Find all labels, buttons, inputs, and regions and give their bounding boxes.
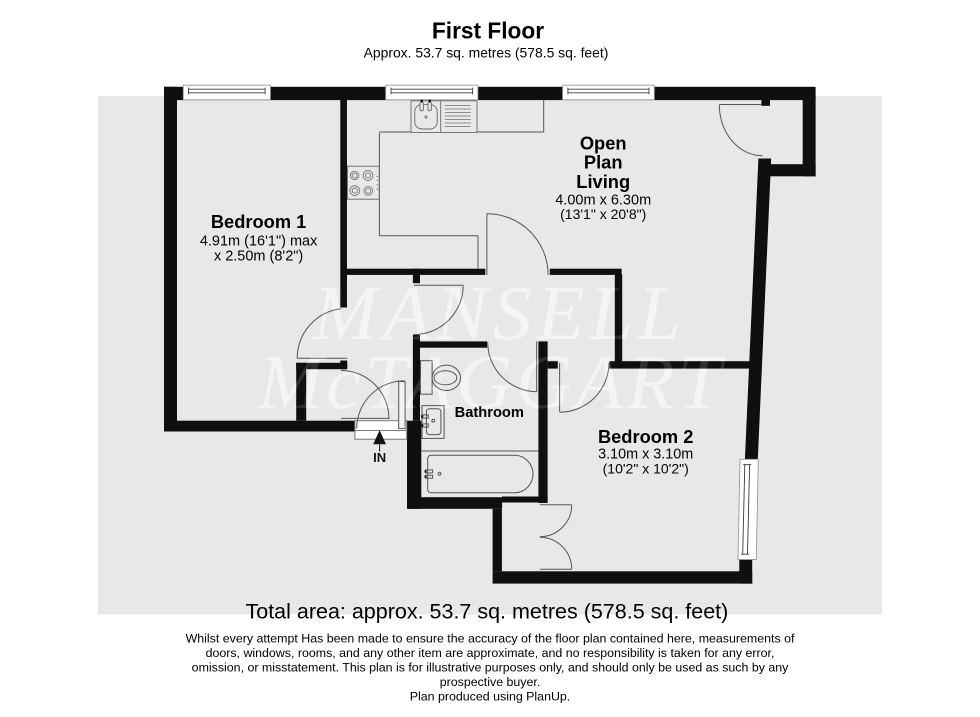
svg-text:(10'2" x 10'2"): (10'2" x 10'2") — [603, 460, 689, 476]
svg-text:Living: Living — [576, 171, 630, 192]
svg-text:Plan: Plan — [584, 151, 623, 172]
svg-text:omission, or misstatement. Thi: omission, or misstatement. This plan is … — [192, 661, 789, 675]
svg-text:First Floor: First Floor — [432, 18, 544, 44]
svg-text:IN: IN — [373, 450, 386, 465]
svg-text:Bedroom 1: Bedroom 1 — [211, 211, 307, 232]
svg-text:doors, windows, rooms, and any: doors, windows, rooms, and any other ite… — [206, 646, 775, 660]
svg-text:prospective buyer.: prospective buyer. — [440, 675, 541, 689]
svg-text:Whilst every attempt Has been: Whilst every attempt Has been made to en… — [186, 632, 795, 646]
svg-text:(13'1" x 20'8"): (13'1" x 20'8") — [560, 206, 646, 222]
svg-text:Bedroom 2: Bedroom 2 — [598, 426, 694, 447]
svg-text:McTAGGART: McTAGGART — [257, 339, 726, 425]
svg-text:Total area: approx. 53.7 sq. m: Total area: approx. 53.7 sq. metres (578… — [245, 600, 728, 624]
svg-text:x 2.50m (8'2"): x 2.50m (8'2") — [214, 249, 303, 265]
svg-text:4.91m (16'1") max: 4.91m (16'1") max — [200, 234, 318, 250]
svg-text:Plan produced using PlanUp.: Plan produced using PlanUp. — [410, 690, 571, 704]
svg-text:Approx. 53.7 sq. metres (578.5: Approx. 53.7 sq. metres (578.5 sq. feet) — [364, 45, 609, 61]
